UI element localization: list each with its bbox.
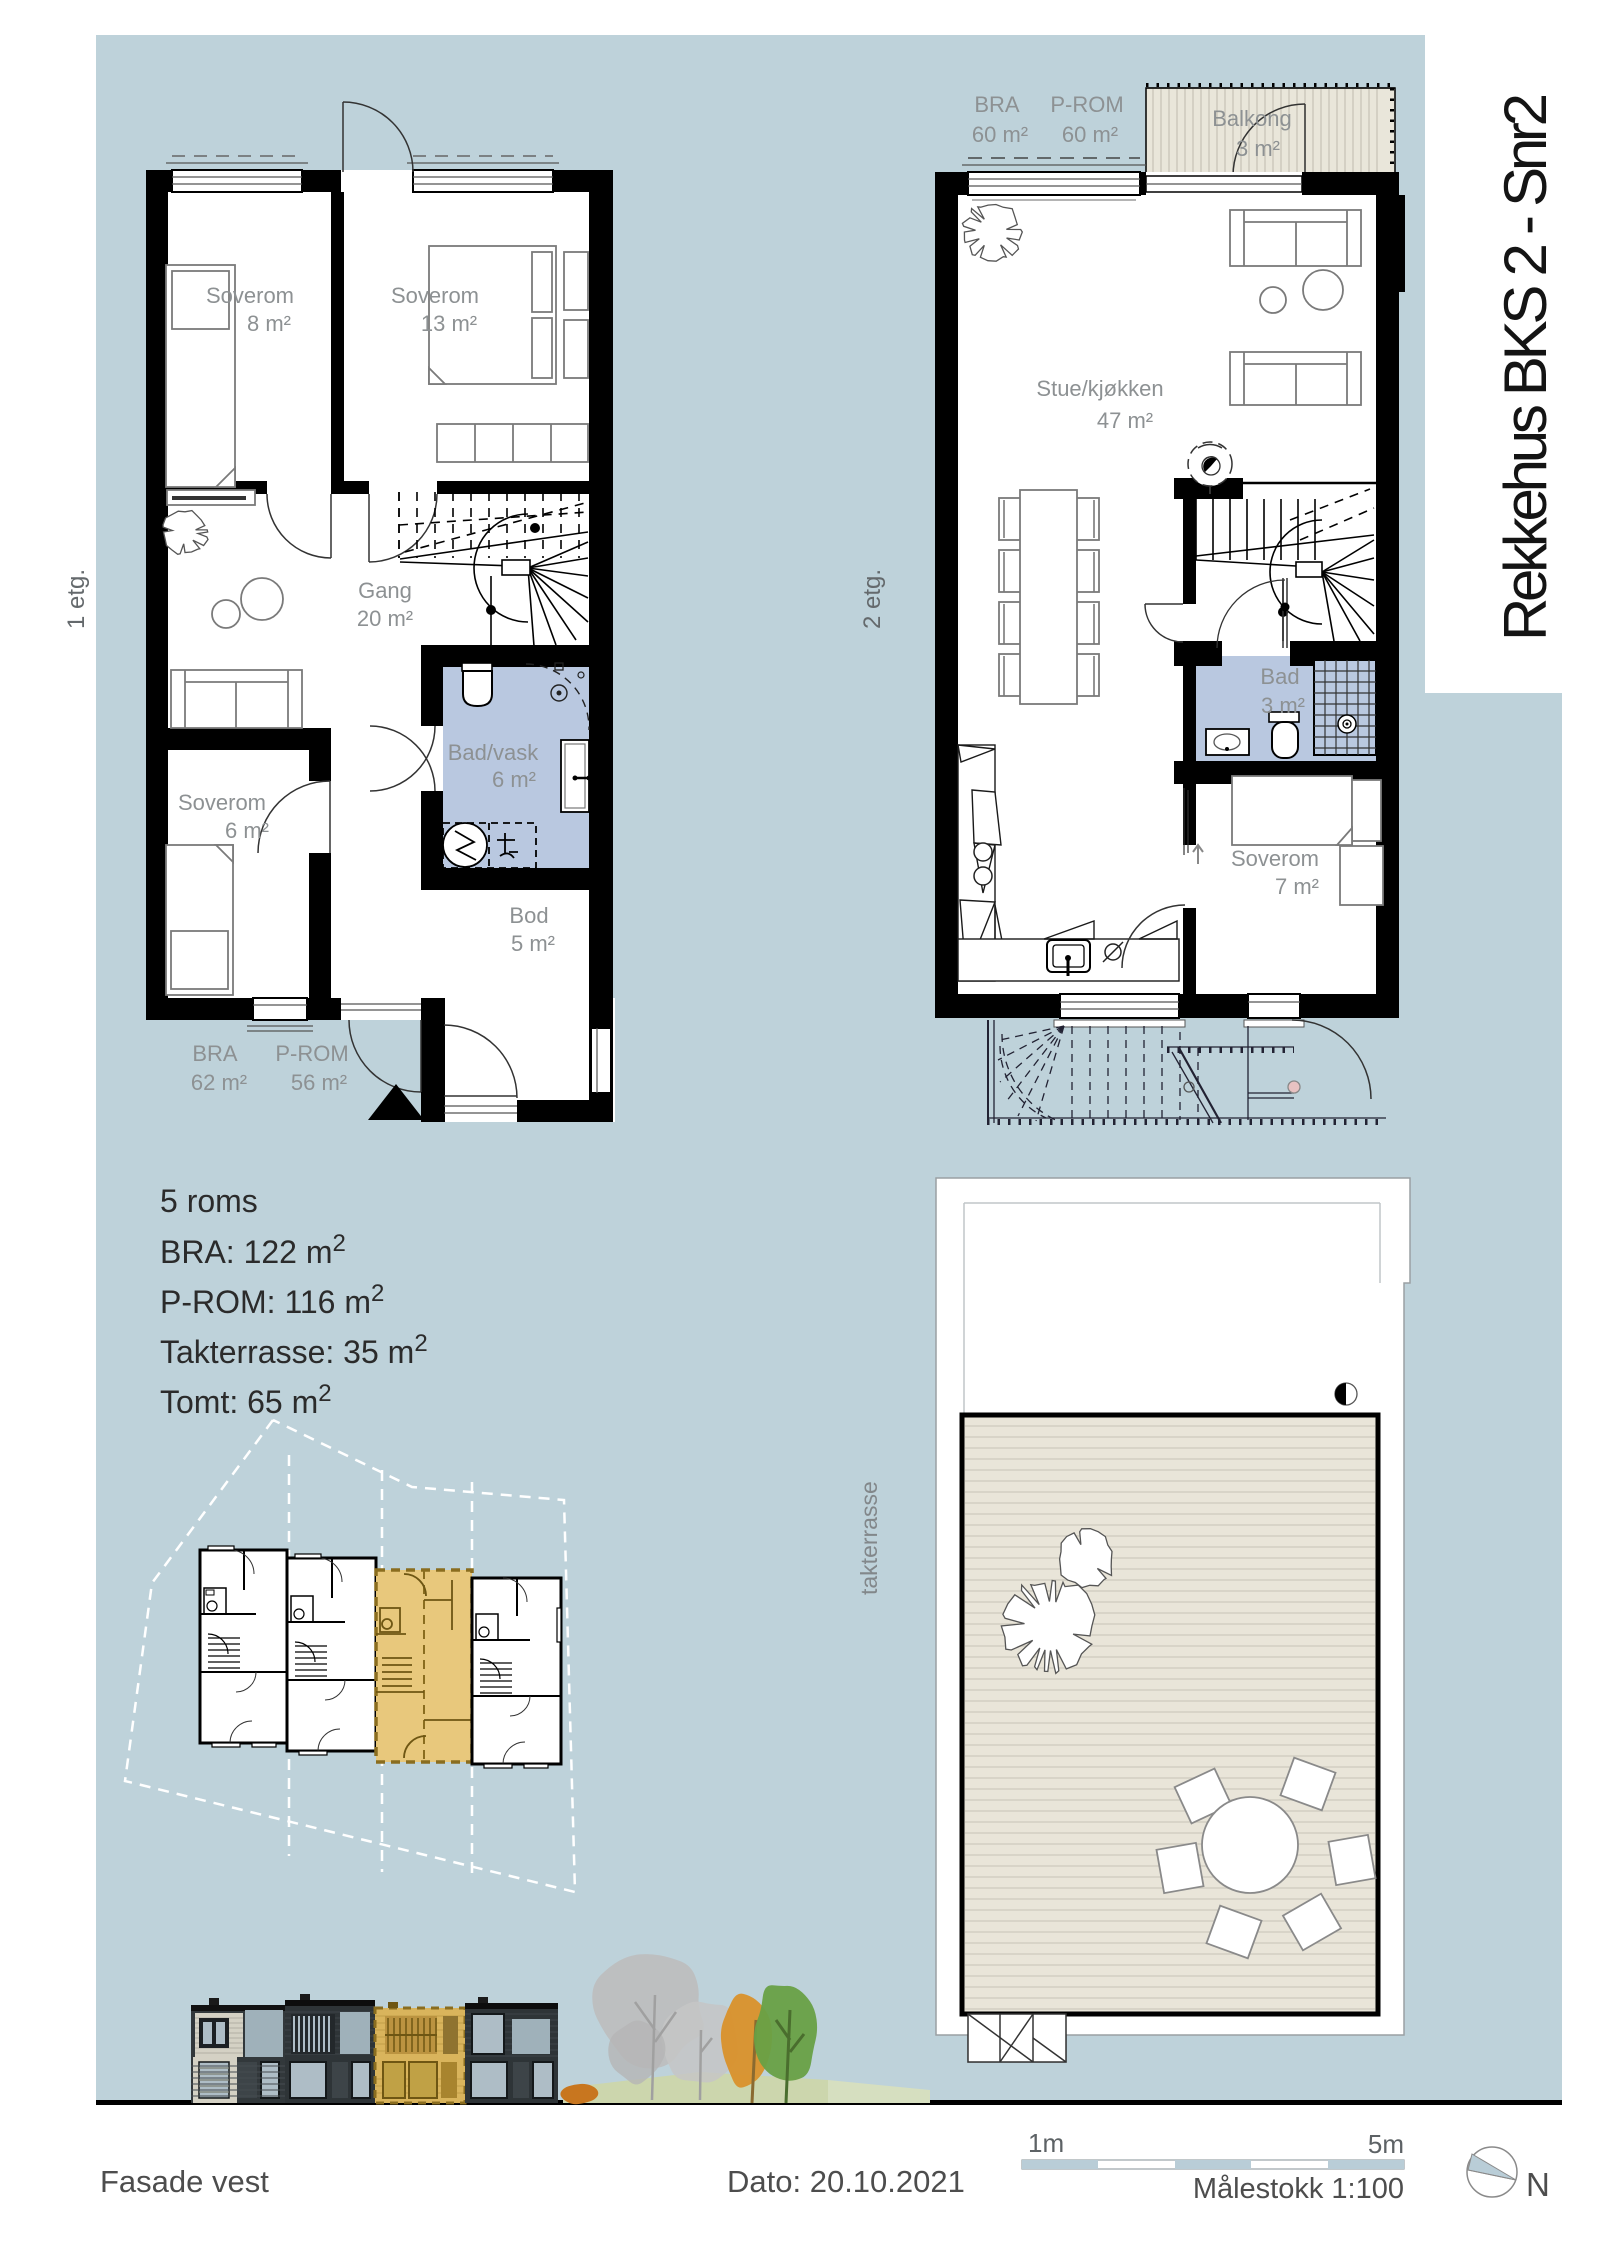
svg-text:BRA: 122 m2: BRA: 122 m2 — [160, 1230, 346, 1270]
svg-text:Soverom: Soverom — [1231, 846, 1319, 871]
svg-text:Balkong: Balkong — [1212, 106, 1292, 131]
svg-text:3 m²: 3 m² — [1261, 693, 1305, 718]
svg-text:5 m²: 5 m² — [511, 931, 555, 956]
svg-text:Dato: 20.10.2021: Dato: 20.10.2021 — [727, 2164, 965, 2199]
svg-text:Fasade vest: Fasade vest — [100, 2164, 269, 2199]
svg-text:Bad/vask: Bad/vask — [448, 740, 539, 765]
svg-text:47 m²: 47 m² — [1097, 408, 1153, 433]
svg-text:Bod: Bod — [509, 903, 548, 928]
svg-text:6 m²: 6 m² — [225, 818, 269, 843]
svg-text:5m: 5m — [1368, 2129, 1404, 2159]
svg-text:Soverom: Soverom — [206, 283, 294, 308]
svg-text:20 m²: 20 m² — [357, 606, 413, 631]
svg-text:Takterrasse: 35 m2: Takterrasse: 35 m2 — [160, 1330, 428, 1370]
svg-text:Rekkehus BKS 2 - Snr2: Rekkehus BKS 2 - Snr2 — [1492, 93, 1559, 641]
svg-text:Gang: Gang — [358, 578, 412, 603]
svg-text:13 m²: 13 m² — [421, 311, 477, 336]
svg-text:62 m²: 62 m² — [191, 1070, 247, 1095]
svg-text:56 m²: 56 m² — [291, 1070, 347, 1095]
svg-text:60 m²: 60 m² — [1062, 122, 1118, 147]
svg-text:P-ROM: P-ROM — [275, 1041, 348, 1066]
svg-text:5 roms: 5 roms — [160, 1183, 258, 1219]
svg-text:2 etg.: 2 etg. — [859, 569, 886, 629]
svg-text:7 m²: 7 m² — [1275, 874, 1319, 899]
svg-text:1 etg.: 1 etg. — [63, 569, 90, 629]
svg-text:Stue/kjøkken: Stue/kjøkken — [1036, 376, 1163, 401]
svg-text:8 m²: 8 m² — [247, 311, 291, 336]
svg-text:6 m²: 6 m² — [492, 767, 536, 792]
svg-text:takterrasse: takterrasse — [856, 1481, 882, 1595]
svg-text:BRA: BRA — [974, 92, 1020, 117]
svg-text:1m: 1m — [1028, 2128, 1064, 2158]
svg-text:Bad: Bad — [1260, 664, 1299, 689]
svg-text:60 m²: 60 m² — [972, 122, 1028, 147]
svg-text:Tomt: 65 m2: Tomt: 65 m2 — [160, 1380, 332, 1420]
svg-text:P-ROM: P-ROM — [1050, 92, 1123, 117]
svg-text:Soverom: Soverom — [178, 790, 266, 815]
svg-text:Soverom: Soverom — [391, 283, 479, 308]
svg-text:N: N — [1526, 2166, 1550, 2203]
svg-text:P-ROM: 116 m2: P-ROM: 116 m2 — [160, 1280, 384, 1320]
svg-text:BRA: BRA — [192, 1041, 238, 1066]
svg-text:3 m²: 3 m² — [1236, 136, 1280, 161]
svg-text:Målestokk 1:100: Målestokk 1:100 — [1193, 2173, 1404, 2205]
